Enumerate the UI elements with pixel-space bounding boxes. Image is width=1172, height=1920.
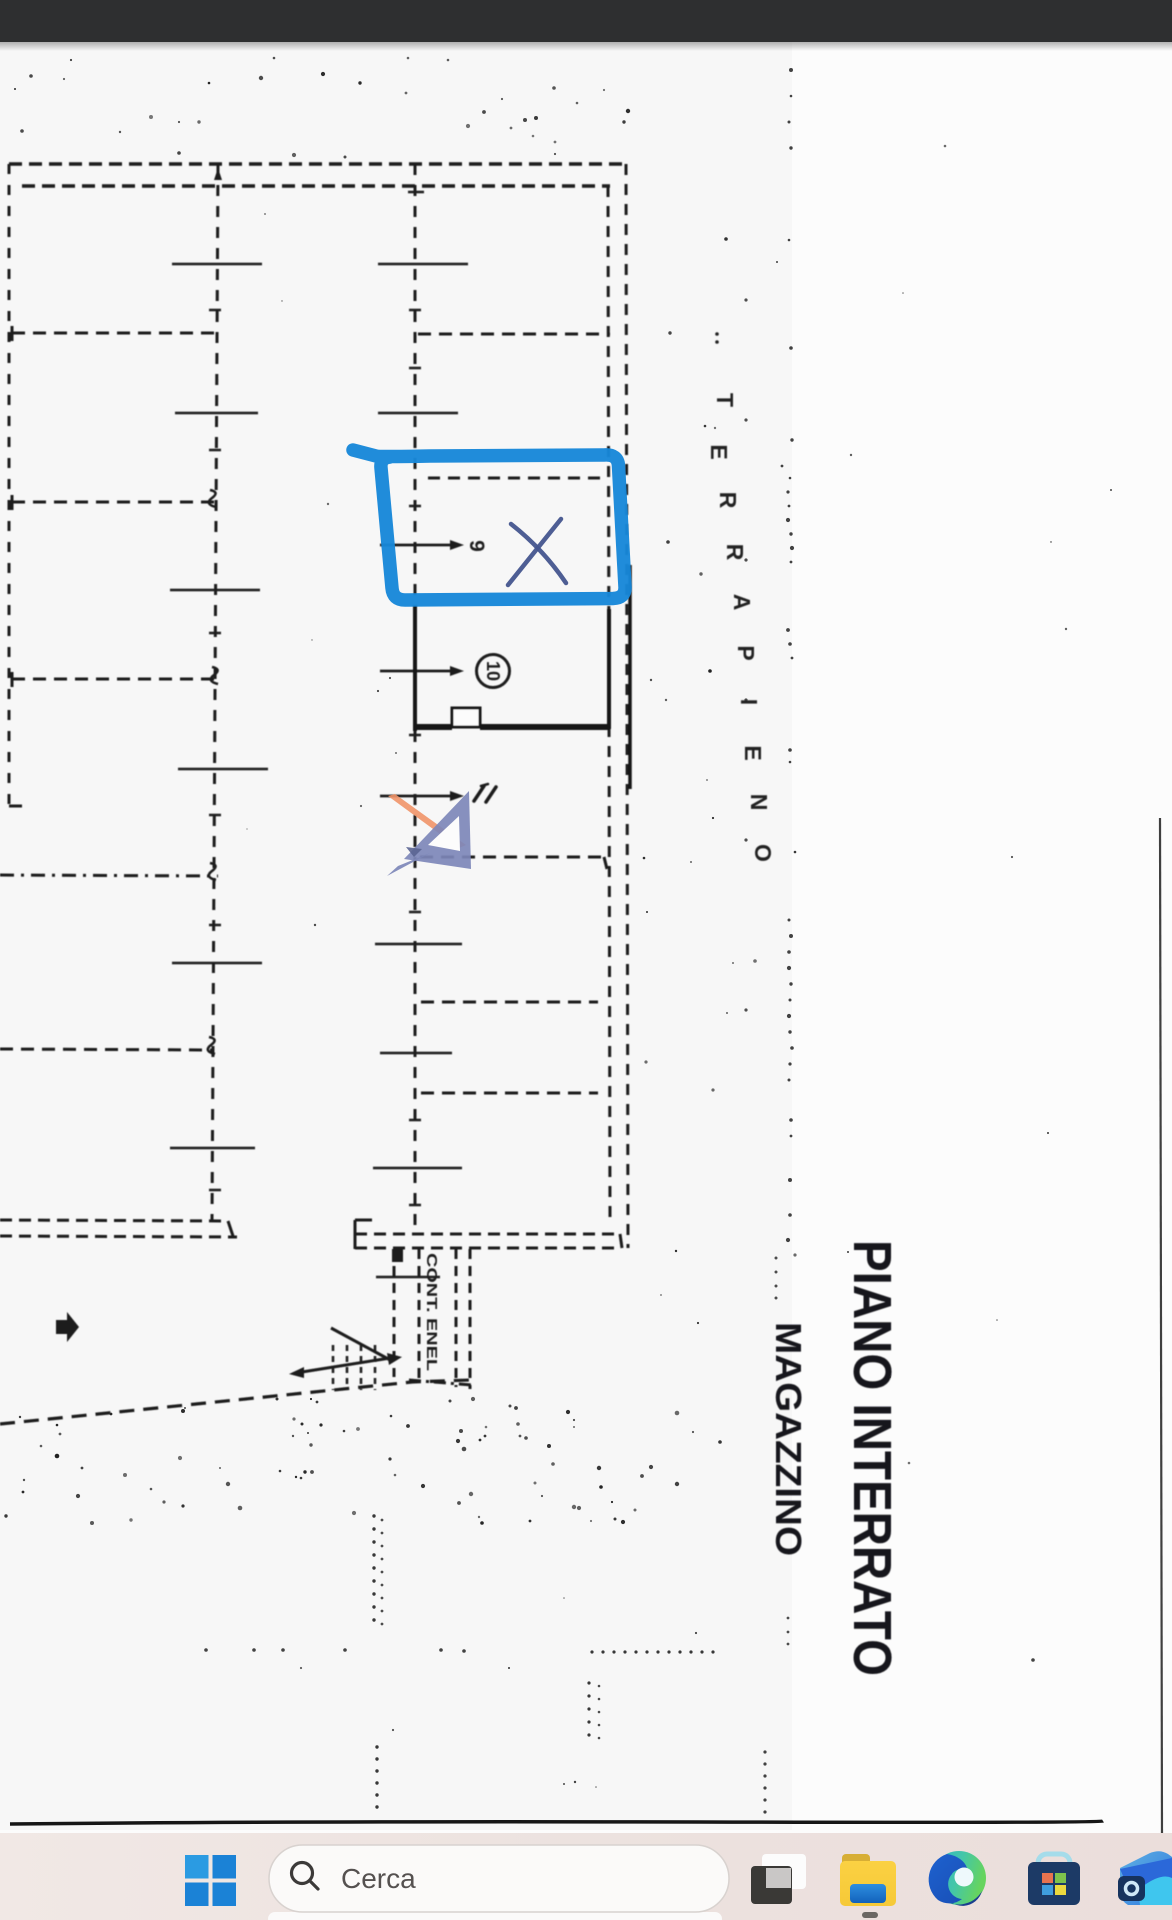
svg-text:MAGAZZINO: MAGAZZINO bbox=[768, 1322, 809, 1556]
svg-text:10: 10 bbox=[483, 661, 503, 681]
svg-text:E: E bbox=[740, 745, 766, 760]
svg-text:9: 9 bbox=[465, 540, 488, 552]
svg-text:R: R bbox=[722, 544, 748, 561]
svg-text:E: E bbox=[706, 444, 732, 459]
svg-text:O: O bbox=[750, 844, 776, 862]
svg-text:P: P bbox=[733, 645, 759, 660]
svg-text:T: T bbox=[712, 393, 738, 407]
svg-text:A: A bbox=[729, 594, 755, 611]
svg-text:I: I bbox=[736, 699, 762, 705]
svg-text:Cerca: Cerca bbox=[341, 1863, 416, 1894]
svg-text:R: R bbox=[715, 492, 741, 509]
svg-text:CONT. ENEL: CONT. ENEL bbox=[423, 1253, 439, 1371]
svg-text:PIANO INTERRATO: PIANO INTERRATO bbox=[842, 1240, 902, 1676]
svg-text:N: N bbox=[746, 794, 772, 811]
